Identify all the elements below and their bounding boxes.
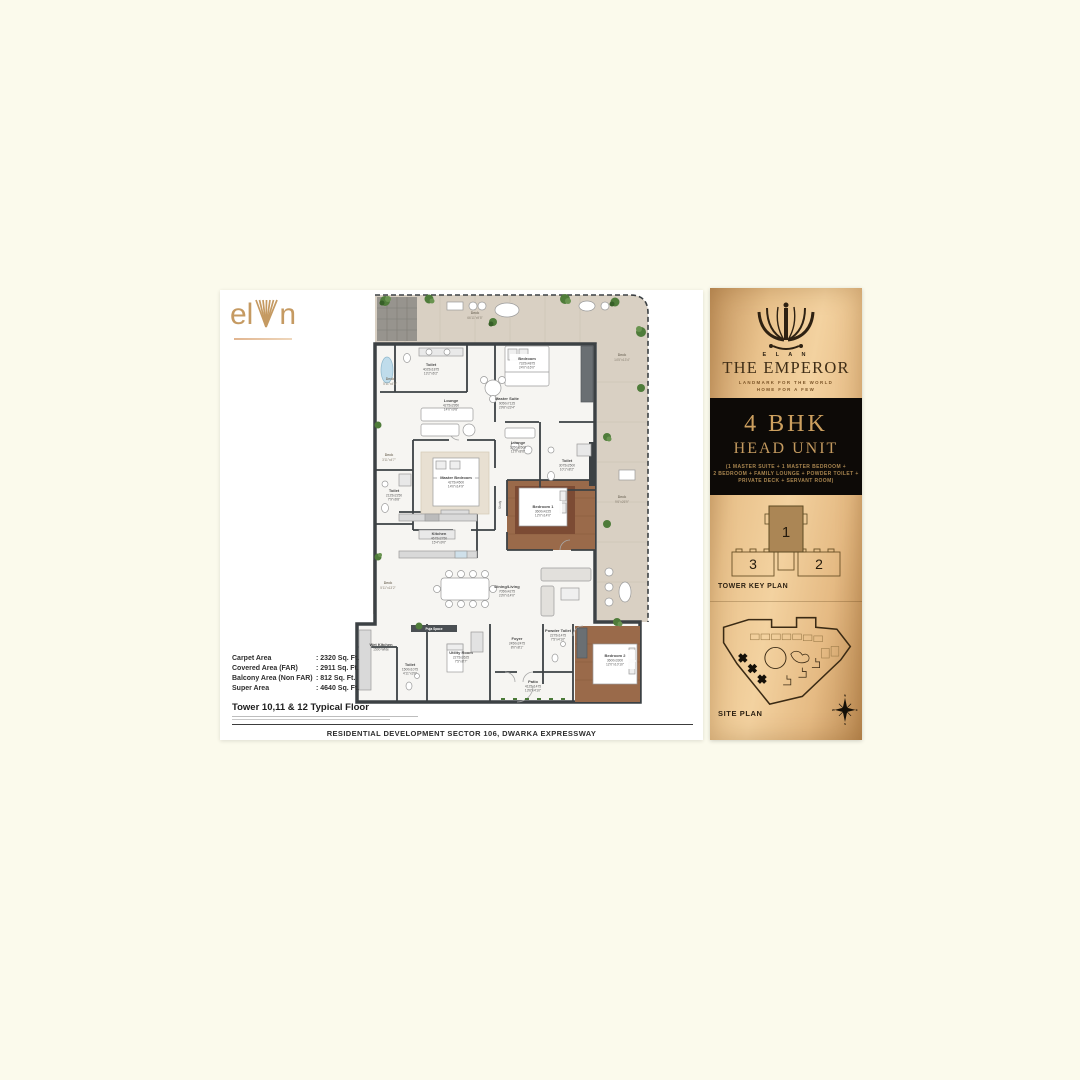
room-dim: 13'6"x4'10" <box>525 689 542 693</box>
room-label-deck-left-2: Deck <box>385 453 394 457</box>
room-dim: 7'5"x8'7" <box>455 660 468 664</box>
keyplan-unit-2: 2 <box>815 556 823 572</box>
keyplan-unit-1: 1 <box>782 524 790 541</box>
room-label-bedroom-1: Bedroom 1 <box>533 504 555 509</box>
compass-w: W <box>832 708 835 712</box>
table-row: Balcony Area (Non FAR) : 812 Sq. Ft. <box>232 674 359 684</box>
table-row: Carpet Area : 2320 Sq. Ft. <box>232 654 359 664</box>
unit-desc-line: PRIVATE DECK + SERVANT ROOM) <box>710 478 862 485</box>
room-dim: 11'0"x8'6" <box>511 450 526 454</box>
room-label-deck-top: Deck <box>471 311 480 315</box>
unit-type: 4 BHK <box>710 411 862 438</box>
unit-desc-line: (1 MASTER SUITE + 1 MASTER BEDROOM + <box>710 464 862 471</box>
unit-desc-line: 2 BEDROOM + FAMILY LOUNGE + POWDER TOILE… <box>710 471 862 478</box>
room-dim: 15'4"x9'0" <box>432 541 447 545</box>
brochure-canvas: el n <box>0 0 1080 1080</box>
room-label-bedroom-top: Bedroom <box>518 356 536 361</box>
room-dim: 1500 Wide <box>373 648 389 652</box>
room-dim: 4'11"x3'6" <box>403 672 418 676</box>
area-value: : 2911 Sq. Ft. <box>316 664 359 674</box>
room-dim: 29'8"x23'4" <box>499 406 516 410</box>
compass-n: N <box>844 693 847 697</box>
table-row: Covered Area (FAR) : 2911 Sq. Ft. <box>232 664 359 674</box>
room-dim: 7'9"x6'8" <box>388 498 401 502</box>
elan-logo-n: n <box>279 302 296 328</box>
room-dim: 5'11"x4'8" <box>383 382 397 386</box>
room-label-toilet-mid: Toilet <box>562 458 573 463</box>
room-label-lounge-family: Lounge <box>444 398 459 403</box>
area-value: : 2320 Sq. Ft. <box>316 654 359 664</box>
room-label-dining-living: Dining/Living <box>494 584 520 589</box>
room-label-deck-right-mid: Deck <box>618 495 627 499</box>
tower-key-plan-label: TOWER KEY PLAN <box>718 583 788 590</box>
floorplan-page: el n <box>220 290 703 740</box>
area-value: : 812 Sq. Ft. <box>316 674 355 684</box>
elan-logo-tagline-rule <box>234 338 292 340</box>
room-label-study: Study <box>498 501 502 510</box>
room-dim: 3'11"x4'7" <box>382 458 396 462</box>
compass-icon: N S E W <box>832 692 858 726</box>
project-title: THE EMPEROR <box>710 358 862 378</box>
elan-logo-el: el <box>230 302 253 328</box>
area-label: Super Area <box>232 684 316 694</box>
compass-s: S <box>844 722 846 726</box>
room-label-toilet-master: Toilet <box>426 362 437 367</box>
room-label-master-bedroom: Master Bedroom <box>440 475 472 480</box>
unit-subtitle: HEAD UNIT <box>710 440 862 458</box>
floor-plan: Puja Space <box>355 292 657 712</box>
room-dim: 66'11"x9'5" <box>467 316 482 320</box>
footer-rule <box>232 724 693 725</box>
project-footer: RESIDENTIAL DEVELOPMENT SECTOR 106, DWAR… <box>220 729 703 738</box>
room-label-toilet-small: Toilet <box>405 662 416 667</box>
room-label-bedroom-2: Bedroom 2 <box>605 653 627 658</box>
room-label-patio: Patio <box>528 679 538 684</box>
room-label-master-suite: Master Suite <box>495 396 520 401</box>
area-label: Covered Area (FAR) <box>232 664 316 674</box>
room-dim: 10'1"x8'2" <box>560 468 575 472</box>
room-label-deck-bottom-left: Deck <box>384 581 393 585</box>
room-label-deck-right-top: Deck <box>618 353 627 357</box>
room-dim: 13'2"x6'2" <box>424 372 439 376</box>
room-dim: 7'5"x4'10" <box>551 638 566 642</box>
keyplan-unit-3: 3 <box>749 556 757 572</box>
room-label-puja: Puja Space <box>425 627 442 631</box>
emperor-crest-icon <box>751 298 821 354</box>
room-label-deck-left-1: Deck <box>386 377 395 381</box>
area-value: : 4640 Sq. Ft. <box>316 684 359 694</box>
table-row: Super Area : 4640 Sq. Ft. <box>232 684 359 694</box>
disclaimer-line <box>232 716 418 717</box>
floor-title: Tower 10,11 & 12 Typical Floor <box>232 702 369 713</box>
elan-logo-fan-icon <box>254 298 278 328</box>
site-plan-label: SITE PLAN <box>718 709 763 718</box>
area-statement-table: Carpet Area : 2320 Sq. Ft. Covered Area … <box>232 654 359 694</box>
unit-type-box: 4 BHK HEAD UNIT (1 MASTER SUITE + 1 MAST… <box>710 398 862 495</box>
tagline-line1: LANDMARK FOR THE WORLD <box>710 380 862 385</box>
compass-e: E <box>856 708 858 712</box>
room-label-powder: Powder Toilet <box>545 628 572 633</box>
room-dim: 12'0"x10'10" <box>606 663 625 667</box>
room-dim: 24'0"x16'0" <box>519 366 536 370</box>
room-label-wet-kitchen: Wet Kitchen <box>369 642 393 647</box>
room-dim: 14'0"x9'8" <box>444 408 459 412</box>
tagline-line2: HOME FOR A FEW <box>710 387 862 392</box>
room-dim: 8'0"x8'1" <box>511 646 524 650</box>
room-dim: 12'0"x14'0" <box>535 514 552 518</box>
unit-description: (1 MASTER SUITE + 1 MASTER BEDROOM + 2 B… <box>710 464 862 485</box>
area-label: Balcony Area (Non FAR) <box>232 674 316 684</box>
room-dim: 14'0"x14'9" <box>448 485 465 489</box>
tower-key-plan: 1 3 2 <box>726 502 846 580</box>
room-label-utility: Utility Room <box>449 650 473 655</box>
room-dim: 23'0"x14'0" <box>499 594 516 598</box>
room-dim: 9'6"x26'9" <box>615 500 629 504</box>
room-label-toilet-left: Toilet <box>389 488 400 493</box>
room-dim: 5'11"x13'2" <box>380 586 395 590</box>
sidebar-divider <box>710 601 862 602</box>
room-label-kitchen: Kitchen <box>432 531 447 536</box>
room-label-lounge-small: Lounge <box>511 440 526 445</box>
disclaimer-line <box>232 719 390 720</box>
elan-logo: el n <box>230 298 296 328</box>
area-label: Carpet Area <box>232 654 316 664</box>
room-label-foyer: Foyer <box>512 636 523 641</box>
room-dim: 14'5"x13'4" <box>614 358 630 362</box>
brand-sidebar: E L A N THE EMPEROR LANDMARK FOR THE WOR… <box>710 288 862 740</box>
